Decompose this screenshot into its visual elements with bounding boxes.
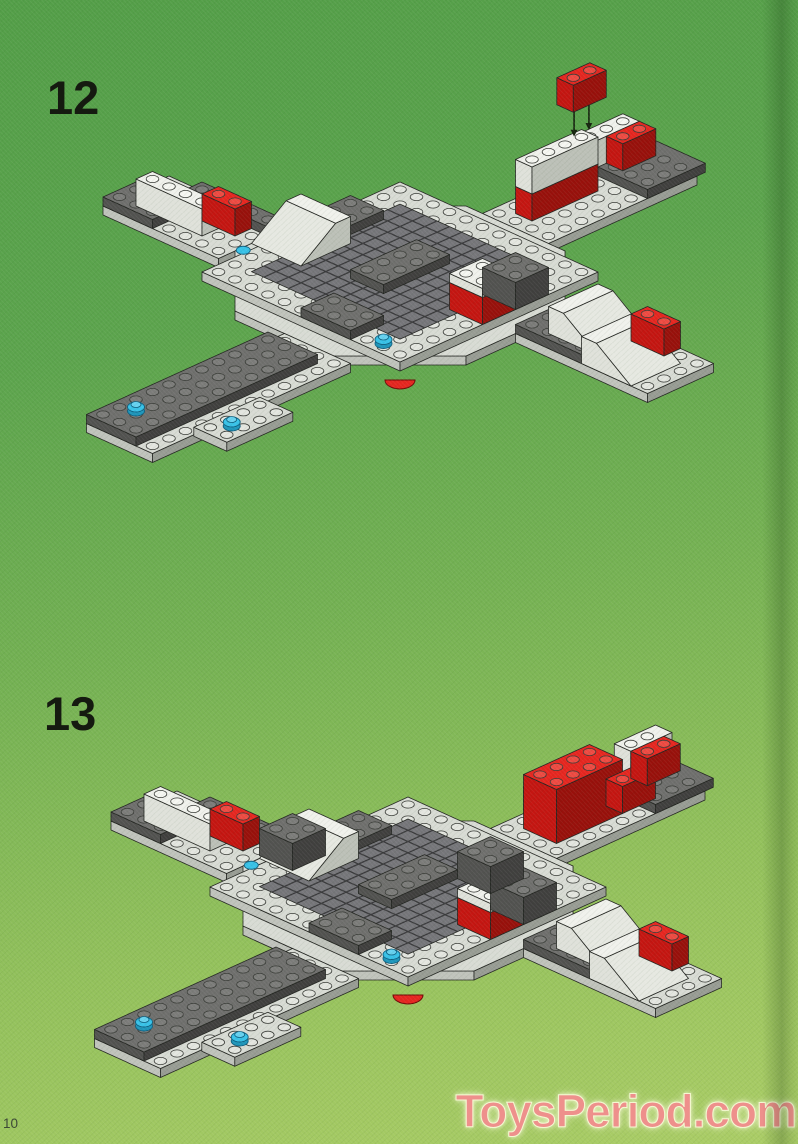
step-13-assembly — [95, 725, 722, 1078]
step-13-assembly-illustration — [0, 700, 798, 1124]
page-number: 10 — [3, 1116, 18, 1131]
step-12-assembly-illustration — [0, 40, 798, 520]
step-13-number: 13 — [44, 690, 96, 737]
instruction-page: 12 13 10 ToysPeriod.com — [0, 0, 798, 1144]
step-12-assembly — [87, 63, 714, 463]
step-12-number: 12 — [47, 74, 99, 121]
callout-red-brick-icon — [557, 63, 607, 113]
toysperiod-watermark: ToysPeriod.com — [456, 1086, 796, 1137]
